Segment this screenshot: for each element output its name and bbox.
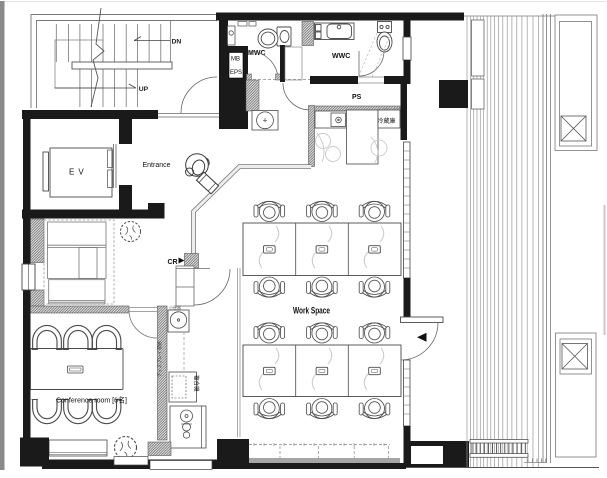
svg-text:Entrance: Entrance (143, 162, 171, 169)
svg-text:DN: DN (172, 39, 182, 46)
svg-text:EV: EV (69, 168, 88, 177)
svg-text:UP: UP (139, 86, 149, 93)
svg-text:Work Space: Work Space (293, 306, 330, 317)
svg-text:PS: PS (352, 94, 362, 101)
svg-text:小便器: 小便器 (169, 304, 181, 310)
svg-text:冷蔵庫: 冷蔵庫 (378, 117, 396, 125)
svg-text:ディスプレイ収納: ディスプレイ収納 (156, 341, 163, 377)
svg-text:Conference room [6名]: Conference room [6名] (56, 395, 127, 405)
svg-text:CR: CR (168, 259, 178, 266)
svg-text:複合機: 複合機 (193, 375, 201, 392)
svg-text:WWC: WWC (332, 53, 350, 60)
svg-text:MB: MB (231, 57, 240, 63)
svg-text:EPS: EPS (230, 70, 242, 76)
